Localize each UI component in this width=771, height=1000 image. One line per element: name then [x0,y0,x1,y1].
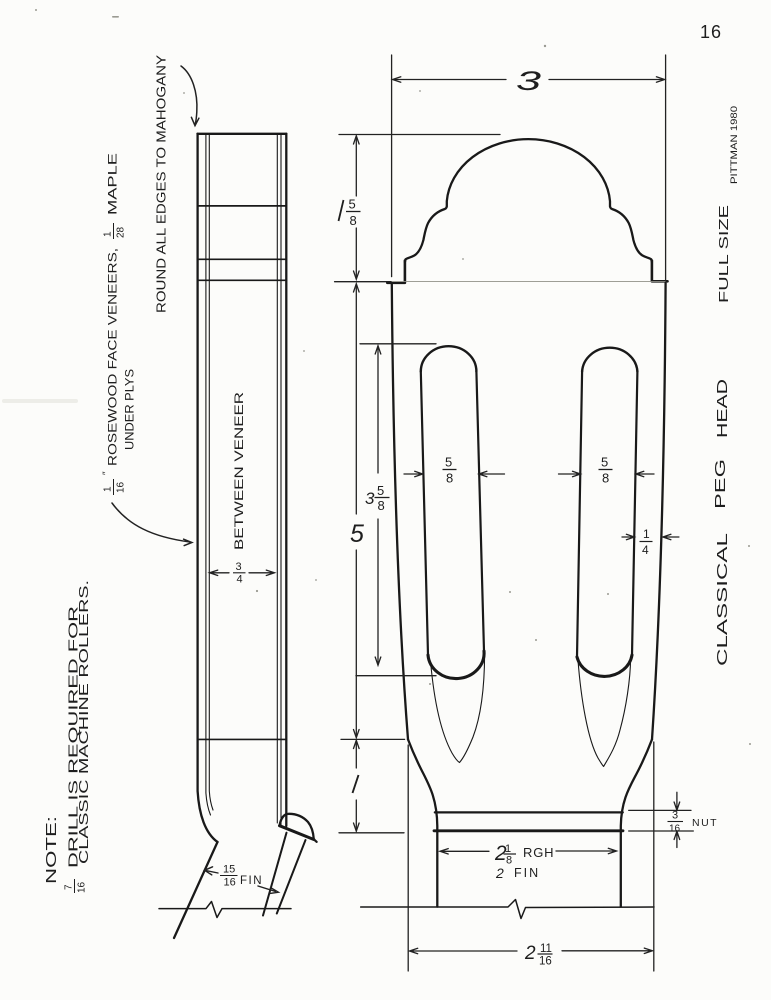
svg-text:″: ″ [102,471,113,475]
svg-text:5: 5 [445,455,452,470]
svg-text:4: 4 [642,543,649,557]
svg-text:BETWEEN VENEER: BETWEEN VENEER [234,392,246,550]
svg-text:1: 1 [643,527,650,541]
svg-text:16: 16 [669,824,681,835]
svg-text:PITTMAN 1980: PITTMAN 1980 [729,106,740,184]
svg-text:5: 5 [349,197,356,212]
svg-text:28: 28 [116,226,127,238]
svg-text:MAPLE: MAPLE [106,153,120,215]
svg-text:5: 5 [350,520,364,548]
svg-text:RGH: RGH [523,845,554,860]
svg-text:FULL SIZE: FULL SIZE [716,205,731,303]
svg-text:NOTE:: NOTE: [43,816,60,884]
svg-text:8: 8 [602,471,609,486]
svg-text:16: 16 [224,877,236,889]
svg-text:CLASSICAL: CLASSICAL [714,533,731,666]
svg-text:4: 4 [237,574,243,586]
svg-text:FIN: FIN [240,875,263,887]
svg-text:7: 7 [64,884,75,890]
svg-text:FIN: FIN [514,866,540,880]
svg-text:PEG: PEG [712,459,729,509]
svg-text:1: 1 [103,486,114,492]
svg-text:3: 3 [672,810,678,822]
svg-text:UNDER PLYS: UNDER PLYS [123,369,137,450]
svg-text:11: 11 [540,943,552,955]
svg-text:2: 2 [495,865,504,881]
svg-text:5: 5 [377,483,384,498]
svg-text:3: 3 [236,561,242,573]
svg-text:CLASSIC MACHINE ROLLERS.: CLASSIC MACHINE ROLLERS. [76,580,91,864]
svg-text:5: 5 [601,455,608,470]
svg-text:1: 1 [103,231,114,237]
svg-text:ROUND ALL EDGES TO MAHOGANY: ROUND ALL EDGES TO MAHOGANY [154,55,169,313]
svg-text:8: 8 [446,471,453,486]
svg-text:3: 3 [365,489,375,508]
svg-text:1: 1 [505,843,511,855]
svg-text:16: 16 [116,481,127,493]
svg-text:3: 3 [516,66,541,96]
svg-text:2: 2 [524,943,536,964]
svg-text:ROSEWOOD FACE VENEERS,: ROSEWOOD FACE VENEERS, [106,248,120,466]
svg-text:HEAD: HEAD [714,379,731,438]
svg-text:16: 16 [77,881,88,893]
svg-text:16: 16 [700,22,722,42]
svg-text:NUT: NUT [692,817,718,829]
svg-text:8: 8 [350,213,357,228]
svg-text:15: 15 [223,864,235,876]
svg-text:8: 8 [378,498,385,513]
svg-text:16: 16 [539,956,552,968]
svg-text:8: 8 [506,855,512,867]
